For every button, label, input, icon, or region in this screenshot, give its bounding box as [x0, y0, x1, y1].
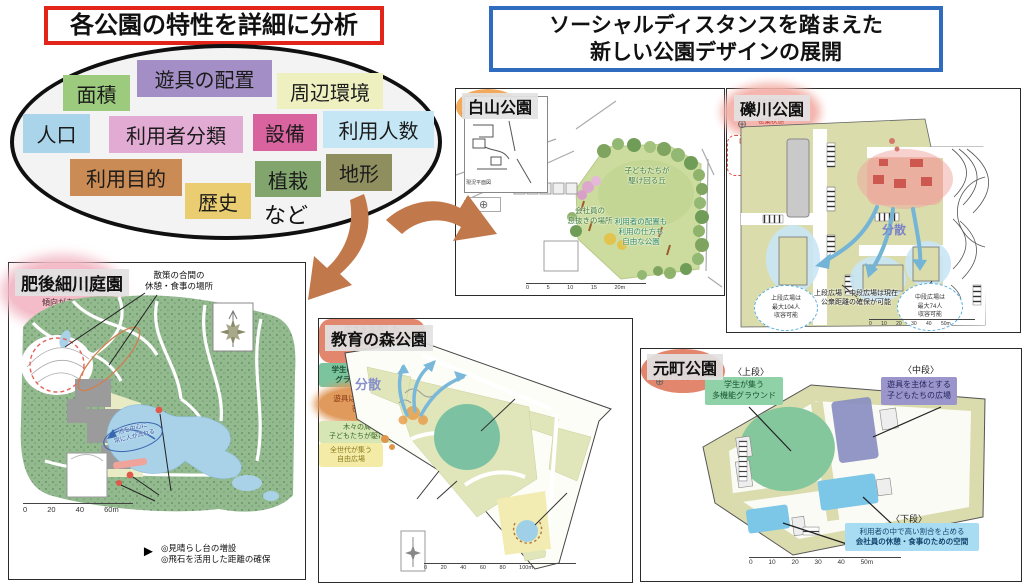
park-title-motomachi: 元町公園: [647, 354, 723, 380]
motomachi-upper-text: 学生が集う 多機能グラウンド: [705, 377, 783, 405]
kyoiku-map: [319, 319, 632, 582]
higo-annotation-rest-spot: 散策の合間の 休憩・食事の場所: [123, 270, 235, 292]
panel-kyoiku-no-mori-park: 教育の森公園 広さを活用した 世代を超えて愛される 多機能公園 学生のための グ…: [318, 318, 633, 583]
hakusan-annotation-free-use: 利用者の配置も 利用の仕方も 自由な公園: [612, 217, 670, 246]
compass-rose: [213, 303, 253, 351]
motomachi-lower-text: 利用者の中で高い割合を占める 会社員の休憩・食事のための空間: [845, 523, 979, 551]
middle-playground: [831, 397, 879, 464]
analysis-title: 各公園の特性を詳細に分析: [44, 6, 384, 45]
factor-tag-history: 歴史: [185, 183, 251, 219]
panel-rekisen-park: 礫川公園 ⊕ 遊具周辺は 子どもたちが集まり 密集状態 【適正利用人数】 砂場:…: [726, 88, 1021, 333]
park-title-rekisen: 礫川公園: [734, 95, 810, 121]
inset-caption: 現況平面図: [466, 179, 491, 186]
pointer-arrow-icon: ►: [141, 544, 156, 559]
park-title-higo: 肥後細川庭園: [15, 269, 129, 296]
rekisen-note: 上段広場・中段広場は現在 公衆距離の確保が可能: [794, 289, 918, 307]
kyoiku-dispersal-label: 分散: [355, 374, 381, 393]
factor-tag-purpose: 利用目的: [70, 159, 182, 196]
factor-tag-facilities: 設備: [253, 114, 317, 151]
panel-motomachi-park: 元町公園 ⊕ 〈上段〉 学生が集う 多機能グラウンド 〈中段〉 遊具を主体とする…: [640, 348, 1022, 582]
factor-tag-surroundings: 周辺環境: [277, 73, 383, 109]
lower-text-line1: 利用者の中で高い割合を占める: [860, 527, 965, 537]
buildings: [514, 183, 578, 271]
rekisen-dispersal-label: 分散: [882, 221, 906, 238]
kyoiku-scale-bar: 0 20 40 60 80 100m: [424, 563, 576, 571]
park-title-hakusan: 白山公園: [462, 93, 538, 119]
rekisen-scale-bar: 0 10 20 30 40 50m: [869, 319, 975, 327]
hakusan-annotation-workers: 会社員の 息抜きの場所: [560, 206, 620, 226]
motomachi-scale-bar: 0 10 20 30 40 50m: [749, 557, 901, 566]
slide-canvas: 各公園の特性を詳細に分析 ソーシャルディスタンスを踏まえた 新しい公園デザインの…: [0, 0, 1024, 585]
factor-tag-user-count: 利用人数: [323, 111, 434, 148]
factor-tag-equipment-layout: 遊具の配置: [137, 60, 272, 97]
motomachi-middle-text: 遊具を主体とする 子どもたちの広場: [881, 377, 957, 405]
factor-tag-area: 面積: [63, 75, 130, 111]
factor-tag-terrain: 地形: [326, 154, 392, 191]
higo-scale-bar: 0 20 40 60m: [23, 503, 133, 514]
panel-higo-hosokawa-garden: 肥後細川庭園 散策の合間の 休憩・食事の場所 池を中心に 常に人が流れる 絶景ポ…: [8, 262, 306, 580]
higo-proposals: ◎見晴らし台の増設 ◎飛石を活用した距離の確保: [161, 543, 306, 565]
compass-rose: [401, 531, 425, 571]
factor-tag-population: 人口: [23, 114, 90, 153]
lower-text-line2: 会社員の休憩・食事のための空間: [856, 537, 969, 547]
hakusan-scale-bar: 0 5 10 15 20m: [526, 283, 646, 291]
student-ground: [434, 404, 500, 470]
flow-arrows-icon: [300, 192, 500, 307]
factor-tag-user-types: 利用者分類: [109, 116, 243, 153]
park-title-kyoiku: 教育の森公園: [325, 325, 433, 351]
hakusan-annotation-hill: 子どもたちが 駆け回る丘: [614, 166, 680, 186]
design-title: ソーシャルディスタンスを踏まえた 新しい公園デザインの展開: [489, 6, 943, 72]
motomachi-middle-label: 〈中段〉: [903, 363, 939, 376]
